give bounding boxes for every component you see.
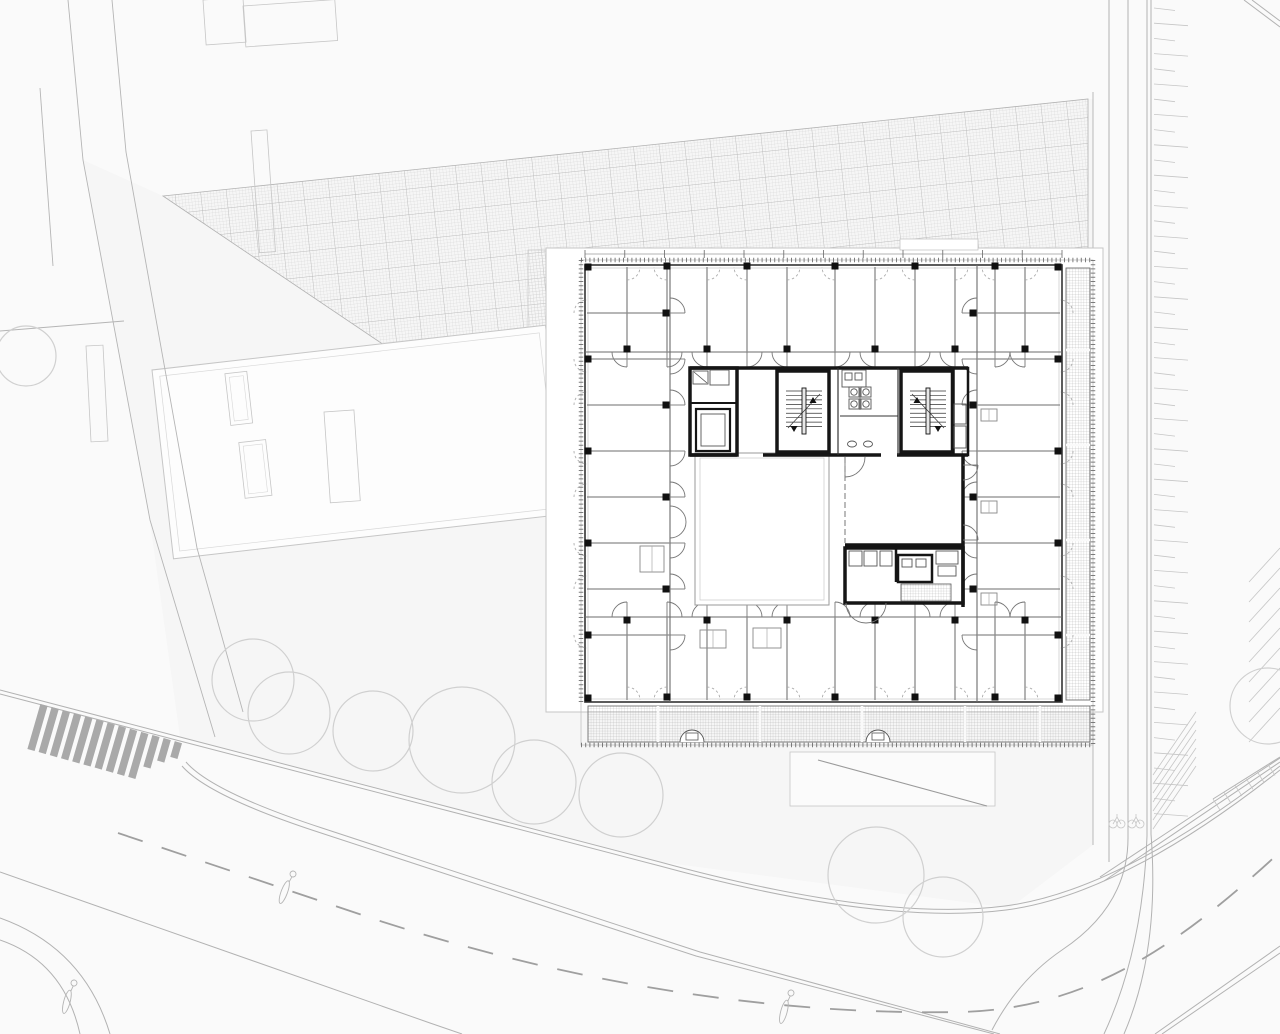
courtyard [695,453,829,605]
column [585,632,592,639]
column [664,263,671,270]
column [663,310,670,317]
balcony-stair-landing [686,733,698,740]
column [585,540,592,547]
column [784,346,791,353]
column [624,346,631,353]
column [1055,695,1062,702]
column [970,402,977,409]
column [832,694,839,701]
column [912,263,919,270]
column [585,695,592,702]
column [1055,264,1062,271]
architectural-site-plan [0,0,1280,1034]
column [663,494,670,501]
crosswalk-stripe [174,742,179,758]
column [704,346,711,353]
column [585,264,592,271]
column [952,346,959,353]
column [1055,356,1062,363]
column [624,617,631,624]
column [663,402,670,409]
building-plan-layer [574,250,1093,745]
balcony-stair-landing [872,733,884,740]
column [744,263,751,270]
shower-mat [901,584,951,601]
balcony-strip-bottom [588,706,1090,742]
column [970,494,977,501]
column [585,448,592,455]
column [952,617,959,624]
column [1055,540,1062,547]
column [872,346,879,353]
column [704,617,711,624]
column [1055,632,1062,639]
column [912,694,919,701]
column [1022,346,1029,353]
column [585,356,592,363]
column [872,617,879,624]
column [664,694,671,701]
entry-ramp [790,752,995,806]
column [1055,448,1062,455]
column [992,263,999,270]
column [832,263,839,270]
column [744,694,751,701]
column [970,586,977,593]
slab-step [900,239,978,250]
site-plan-canvas [0,0,1280,1034]
column [784,617,791,624]
column [970,310,977,317]
column [1022,617,1029,624]
column [663,586,670,593]
column [992,694,999,701]
